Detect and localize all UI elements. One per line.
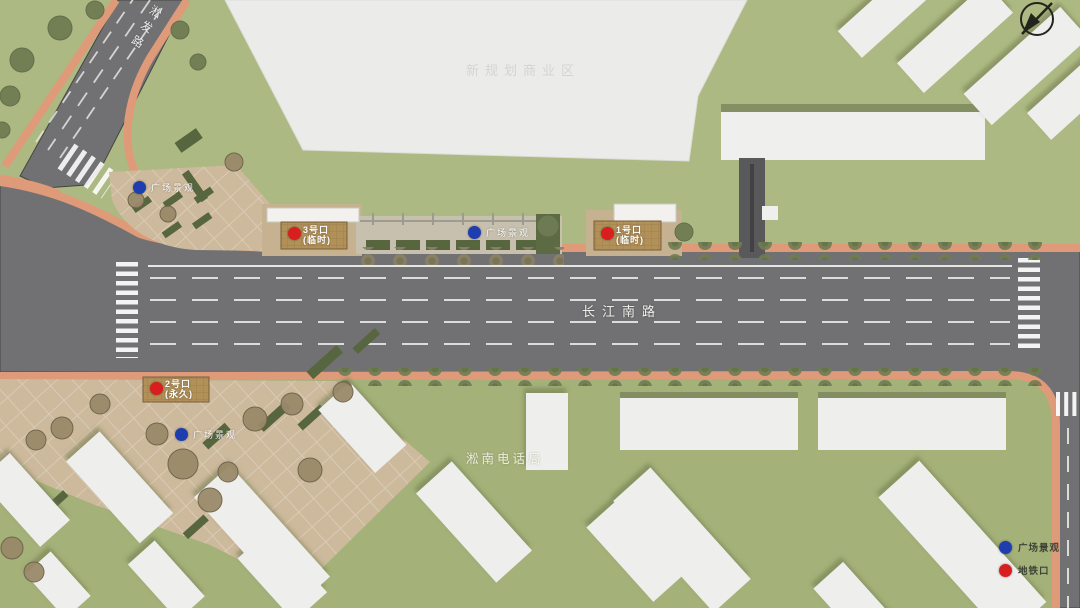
area-label-commercial: 新规划商业区 xyxy=(466,60,580,79)
entrance-label-line1: 1号口 xyxy=(616,225,661,235)
marker-plaza-view-1: 广场景观 xyxy=(133,181,195,194)
plaza-view-dot-icon xyxy=(133,181,146,194)
marker-entrance-2: 2号口 (永久) xyxy=(143,377,209,402)
entrance-label-line1: 3号口 xyxy=(303,225,347,235)
legend-metro-exit-label: 地铁口 xyxy=(1018,563,1050,577)
legend-plaza-view-dot-icon xyxy=(999,541,1012,554)
plaza-view-dot-icon xyxy=(175,428,188,441)
plaza-view-label: 广场景观 xyxy=(193,428,237,441)
plaza-view-dot-icon xyxy=(468,226,481,239)
legend-item-metro-exit: 地铁口 xyxy=(999,563,1060,577)
legend-plaza-view-label: 广场景观 xyxy=(1018,540,1060,554)
building-label-telephone: 淞南电话局 xyxy=(466,448,544,467)
entrance-label-line2: (临时) xyxy=(616,235,661,245)
marker-plaza-view-2: 广场景观 xyxy=(468,226,530,239)
legend-metro-exit-dot-icon xyxy=(999,564,1012,577)
entrance-label-line2: (永久) xyxy=(165,389,209,399)
plaza-view-label: 广场景观 xyxy=(486,226,530,239)
marker-entrance-3: 3号口 (临时) xyxy=(281,222,347,249)
entrance-label-line1: 2号口 xyxy=(165,379,209,389)
metro-entrance-dot-icon xyxy=(288,227,301,240)
road-label-changjiang: 长江南路 xyxy=(582,301,662,320)
plaza-view-label: 广场景观 xyxy=(151,181,195,194)
legend-item-plaza-view: 广场景观 xyxy=(999,540,1060,554)
site-plan-map xyxy=(0,0,1080,608)
legend: 广场景观 地铁口 xyxy=(999,540,1060,577)
metro-entrance-dot-icon xyxy=(150,382,163,395)
site-plan-canvas: 长江南路 淞发路 新规划商业区 淞南电话局 广场景观 广场景观 广场景观 3号口… xyxy=(0,0,1080,608)
entrance-label-line2: (临时) xyxy=(303,235,347,245)
marker-plaza-view-3: 广场景观 xyxy=(175,428,237,441)
metro-entrance-dot-icon xyxy=(601,227,614,240)
marker-entrance-1: 1号口 (临时) xyxy=(594,221,661,250)
